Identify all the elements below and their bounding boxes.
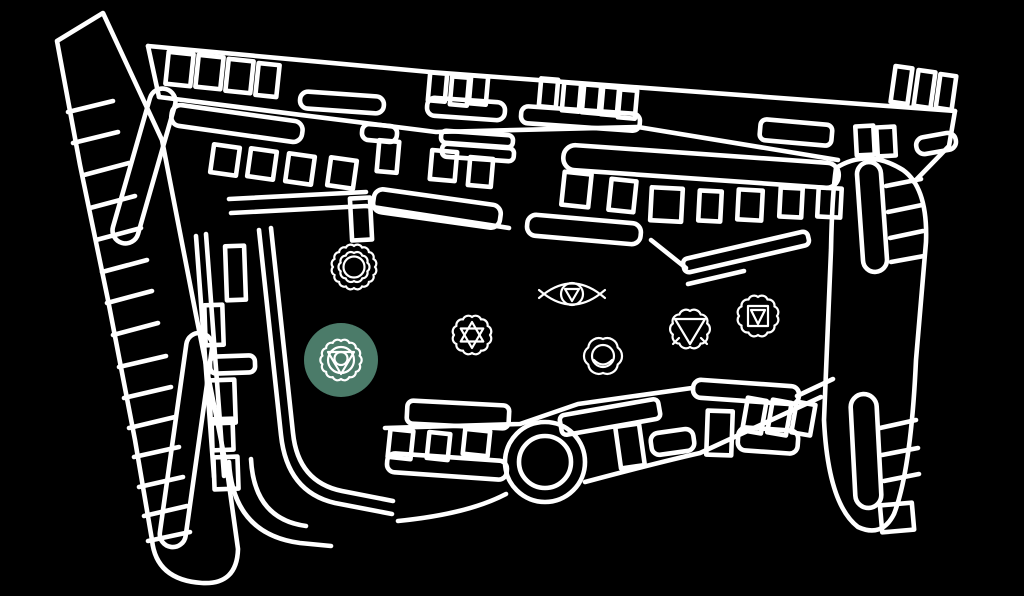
site-map-svg [0, 0, 1024, 596]
site-map [0, 0, 1024, 596]
marker-highlight [304, 323, 378, 397]
marker-throat-chakra[interactable] [304, 323, 378, 397]
